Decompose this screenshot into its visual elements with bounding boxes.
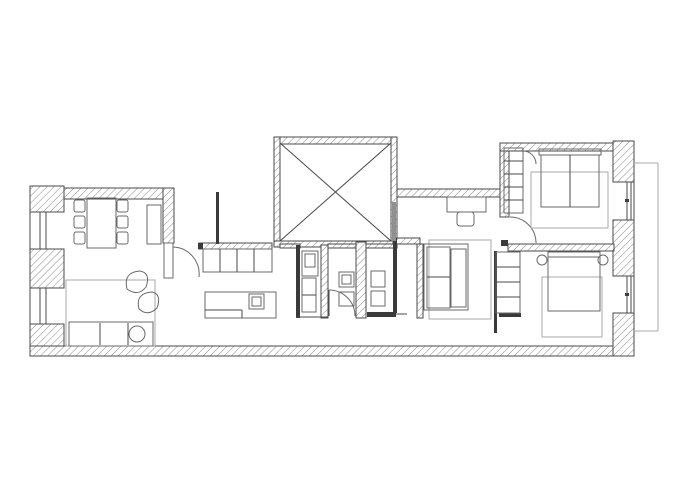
- sink-2-inner: [342, 275, 351, 284]
- rug-living: [66, 280, 155, 346]
- toilet-1: [302, 251, 318, 276]
- floor-plan-page: [0, 0, 700, 500]
- wall-top-left-corner: [30, 186, 64, 212]
- hall-desk: [447, 197, 486, 212]
- bed-mid-side: [451, 249, 466, 307]
- wall-bath-b: [356, 242, 366, 318]
- pier-right-top: [613, 141, 634, 182]
- toilet-3: [371, 291, 385, 306]
- wall-midroom-top: [393, 238, 420, 244]
- rug-bedroom2: [542, 277, 602, 337]
- dining-chair: [117, 232, 128, 244]
- dining-chair: [74, 232, 85, 244]
- dining-chair: [74, 200, 85, 212]
- sink-3: [371, 271, 385, 287]
- dining-chair: [117, 216, 128, 228]
- wall-bath-a: [321, 245, 328, 318]
- dining-table: [87, 198, 116, 248]
- toilet-1-tank: [305, 254, 315, 267]
- shaft-duct: [392, 202, 396, 241]
- island-sink-inner: [252, 297, 261, 306]
- sofa-side-table: [129, 326, 145, 342]
- shaft-wall-left: [274, 137, 280, 247]
- sliding-door-bath: [367, 312, 396, 317]
- dining-chair: [117, 200, 128, 212]
- plan-layer: [30, 137, 658, 356]
- door-leaf-bedroom1: [501, 240, 508, 246]
- shaft-wall-top: [274, 137, 397, 144]
- counter-end-cap: [198, 243, 203, 249]
- armchair-2: [138, 292, 158, 313]
- wall-bath-right-solid: [393, 238, 397, 313]
- sideboard: [147, 205, 161, 244]
- kitchen-partition: [216, 192, 219, 244]
- wall-midroom-left: [417, 244, 423, 318]
- door-arc-living: [173, 247, 199, 277]
- dining-chair: [74, 216, 85, 228]
- wall-bedroom1-top: [500, 143, 614, 151]
- floor-plan-svg: [0, 0, 700, 500]
- wall-hall-top: [397, 189, 502, 197]
- wardrobe-bar-bedroom2: [499, 313, 521, 317]
- wall-bedrooms-partition: [508, 244, 614, 251]
- door-arc-bedroom1: [510, 217, 536, 243]
- island-sink: [249, 294, 264, 309]
- sofa: [69, 322, 153, 346]
- hall-desk-chair: [457, 212, 474, 226]
- bed-bedroom2: [548, 257, 600, 311]
- armchair-1: [126, 271, 147, 293]
- wall-bottom: [30, 346, 634, 356]
- wall-bath-left-solid: [296, 245, 300, 318]
- door-arc-bath: [329, 290, 355, 316]
- pier-right-middle: [613, 220, 634, 276]
- nightstand-left: [537, 255, 547, 265]
- sink-2: [339, 272, 354, 287]
- pier-left-middle: [30, 249, 64, 288]
- wall-living-right: [163, 188, 174, 243]
- kitchen-island: [205, 292, 276, 318]
- pier-right-bottom: [613, 313, 634, 356]
- counter-top-strip: [199, 243, 272, 249]
- bed-bedroom2-headboard: [548, 252, 600, 257]
- door-leaf-living: [164, 243, 173, 278]
- closet-arc-bedroom1: [523, 151, 536, 164]
